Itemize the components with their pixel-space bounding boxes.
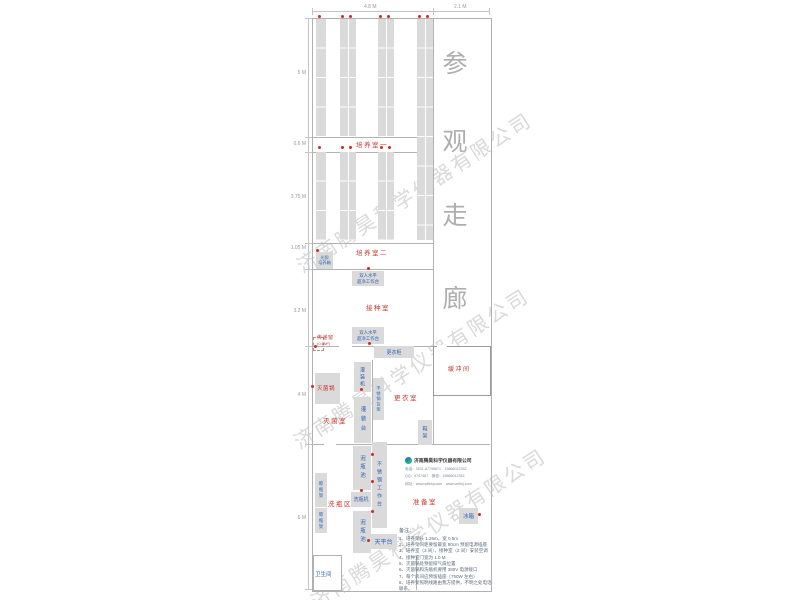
marker-dot: [318, 15, 321, 18]
corridor-wall: [433, 18, 434, 346]
marker-dot: [349, 146, 352, 149]
marker-dot: [311, 385, 314, 388]
marker-dot: [341, 146, 344, 149]
marker-dot: [371, 510, 374, 513]
dim-tick: [305, 152, 312, 153]
marker-dot: [387, 15, 390, 18]
balance-table-label: 天平台: [374, 537, 392, 546]
corridor-label-char: 走: [441, 196, 469, 232]
dim-tick: [305, 589, 312, 590]
marker-dot: [314, 345, 317, 348]
soak-pool-label: 泡瓶池: [358, 455, 366, 481]
door-gap: [437, 345, 447, 348]
bottle-washer: 洗瓶机: [351, 492, 371, 507]
room-label-changing: 更衣室: [394, 392, 418, 402]
filling-table-label: 灌装台: [359, 406, 367, 435]
corridor-label-char: 观: [441, 122, 469, 158]
marker-dot: [368, 342, 371, 345]
room-label-cultivation1: 培养室一: [356, 139, 388, 149]
company-phone: 电话：0531-87796671 15866012352: [405, 467, 493, 472]
company-qq: QQ：9747467 微信：15866012352: [405, 474, 493, 479]
dim-tick: [312, 8, 313, 15]
dim-tick: [305, 137, 312, 138]
filling-machine-label: 灌装机: [359, 367, 366, 388]
wall: [312, 152, 418, 153]
corridor-wall: [433, 394, 434, 444]
door-gap: [437, 392, 447, 395]
bottle-washer-label: 洗瓶机: [353, 496, 368, 503]
soak-pool: 泡瓶池: [353, 511, 371, 553]
stainless-worktable: 不锈钢工作台: [372, 442, 387, 528]
wardrobe-label: 更衣柜: [386, 349, 401, 356]
fridge: 冰箱: [459, 508, 478, 524]
shoe-rack-label: 鞋架: [422, 426, 429, 440]
room-label-inoculation: 接种室: [366, 302, 390, 312]
drying-rack-label: 晾瓶架: [318, 512, 324, 530]
corridor-label-char: 廊: [441, 279, 469, 315]
marker-dot: [371, 480, 374, 483]
marker-dot: [341, 15, 344, 18]
clean-bench-label: 超净工作台: [357, 336, 379, 341]
dim-left-6: 4 M: [288, 392, 306, 398]
dimension-line-top: [312, 11, 490, 12]
culture-rack: [340, 152, 356, 240]
dim-tick: [489, 8, 490, 15]
marker-dot: [367, 267, 370, 270]
dim-tick: [305, 269, 312, 270]
floor-plan: 济南腾昊科学仪器有限公司 济南腾昊科学仪器有限公司 济南腾昊科学仪器有限公司 4…: [0, 0, 800, 600]
dim-tick: [433, 8, 434, 15]
balance-table: 天平台: [370, 534, 397, 549]
drying-rack: 晾瓶架: [315, 473, 327, 507]
light-incubator: 光照 培养箱: [316, 252, 333, 269]
culture-rack: [316, 19, 326, 137]
clean-bench: 双人水平 超净工作台: [352, 271, 384, 286]
company-block: 济南腾昊科学仪器有限公司 电话：0531-87796671 1586601235…: [405, 457, 493, 487]
room-label-buffer: 缓冲间: [448, 364, 471, 373]
culture-rack: [378, 19, 394, 137]
wall: [312, 243, 433, 244]
marker-dot: [478, 513, 481, 516]
company-logo-icon: [405, 457, 412, 464]
room-label-cultivation2: 培养室二: [356, 247, 388, 257]
marker-dot: [367, 539, 370, 542]
dim-left-4: 1.05 M: [282, 245, 306, 251]
marker-dot: [388, 146, 391, 149]
shoe-rack: 鞋架: [418, 420, 432, 445]
marker-dot: [316, 249, 319, 252]
soak-pool: 泡瓶池: [353, 446, 371, 490]
note-item: 8、培养架照明线路由我方提供，不明之处电话联系。: [399, 580, 494, 593]
corridor-label-char: 参: [441, 44, 469, 80]
culture-rack: [417, 19, 433, 240]
wall: [312, 137, 418, 138]
note-item: 3、培养室（3 间）、接种室（2 间）安装空调: [399, 548, 494, 554]
clean-bench-label: 超净工作台: [357, 279, 379, 284]
marker-dot: [380, 146, 383, 149]
culture-rack: [316, 152, 326, 240]
soak-pool-label: 泡瓶池: [358, 519, 366, 545]
stainless-worktable-label: 不锈钢工作台: [376, 461, 383, 509]
dim-left-3: 3.75 M: [282, 194, 306, 200]
drying-rack-label: 晾瓶架: [318, 481, 324, 499]
marker-dot: [360, 489, 363, 492]
marker-dot: [360, 388, 363, 391]
room-label-washing: 洗瓶区: [328, 498, 352, 508]
dim-left-7: 6 M: [288, 515, 306, 521]
marker-dot: [318, 146, 321, 149]
dim-left-5: 3.2 M: [286, 308, 306, 314]
dim-top-corridor: 2.1 M: [452, 4, 469, 10]
light-incubator-label: 培养箱: [318, 260, 331, 265]
notes-block: 备注： 1、培养架长 1.25m，宽 0.5m 2、培养架间距要留最宽 80cm…: [399, 528, 494, 592]
culture-rack: [378, 152, 394, 240]
stainless-shelf-label: 不锈钢货架: [376, 386, 382, 412]
culture-rack: [340, 19, 356, 137]
dimension-line-left: [308, 18, 309, 590]
filling-table: 灌装台: [354, 397, 371, 443]
dim-tick: [305, 444, 312, 445]
fridge-label: 冰箱: [463, 512, 474, 520]
wall: [336, 444, 372, 445]
notes-title: 备注：: [399, 528, 494, 534]
room-label-toilet: 卫生间: [315, 570, 332, 578]
wall: [384, 444, 490, 445]
marker-dot: [371, 453, 374, 456]
sterilizer-label: 灭菌锅: [317, 384, 335, 392]
company-name: 济南腾昊科学仪器有限公司: [414, 457, 493, 464]
pass-window-size: (0.6M²): [317, 341, 330, 346]
room-label-preparation: 准备室: [413, 496, 437, 506]
dim-top-main: 4.8 M: [362, 4, 379, 10]
wall: [312, 444, 324, 445]
room-label-sterilization: 灭菌室: [323, 415, 347, 425]
marker-dot: [379, 15, 382, 18]
dim-tick: [305, 243, 312, 244]
dim-left-1: 5 M: [286, 70, 306, 76]
dim-tick: [305, 346, 312, 347]
company-web: 网址：www.sdthky.com www.cnthkj.com: [405, 482, 493, 487]
dim-tick: [305, 18, 312, 19]
marker-dot: [426, 15, 429, 18]
drying-rack: 晾瓶架: [315, 508, 327, 533]
stainless-shelf: 不锈钢货架: [373, 378, 384, 420]
pass-window-label: 传递窗: [317, 334, 334, 341]
dim-left-2: 0.6 M: [284, 141, 306, 147]
wardrobe: 更衣柜: [374, 346, 414, 358]
marker-dot: [418, 15, 421, 18]
wall: [312, 269, 433, 270]
marker-dot: [349, 15, 352, 18]
